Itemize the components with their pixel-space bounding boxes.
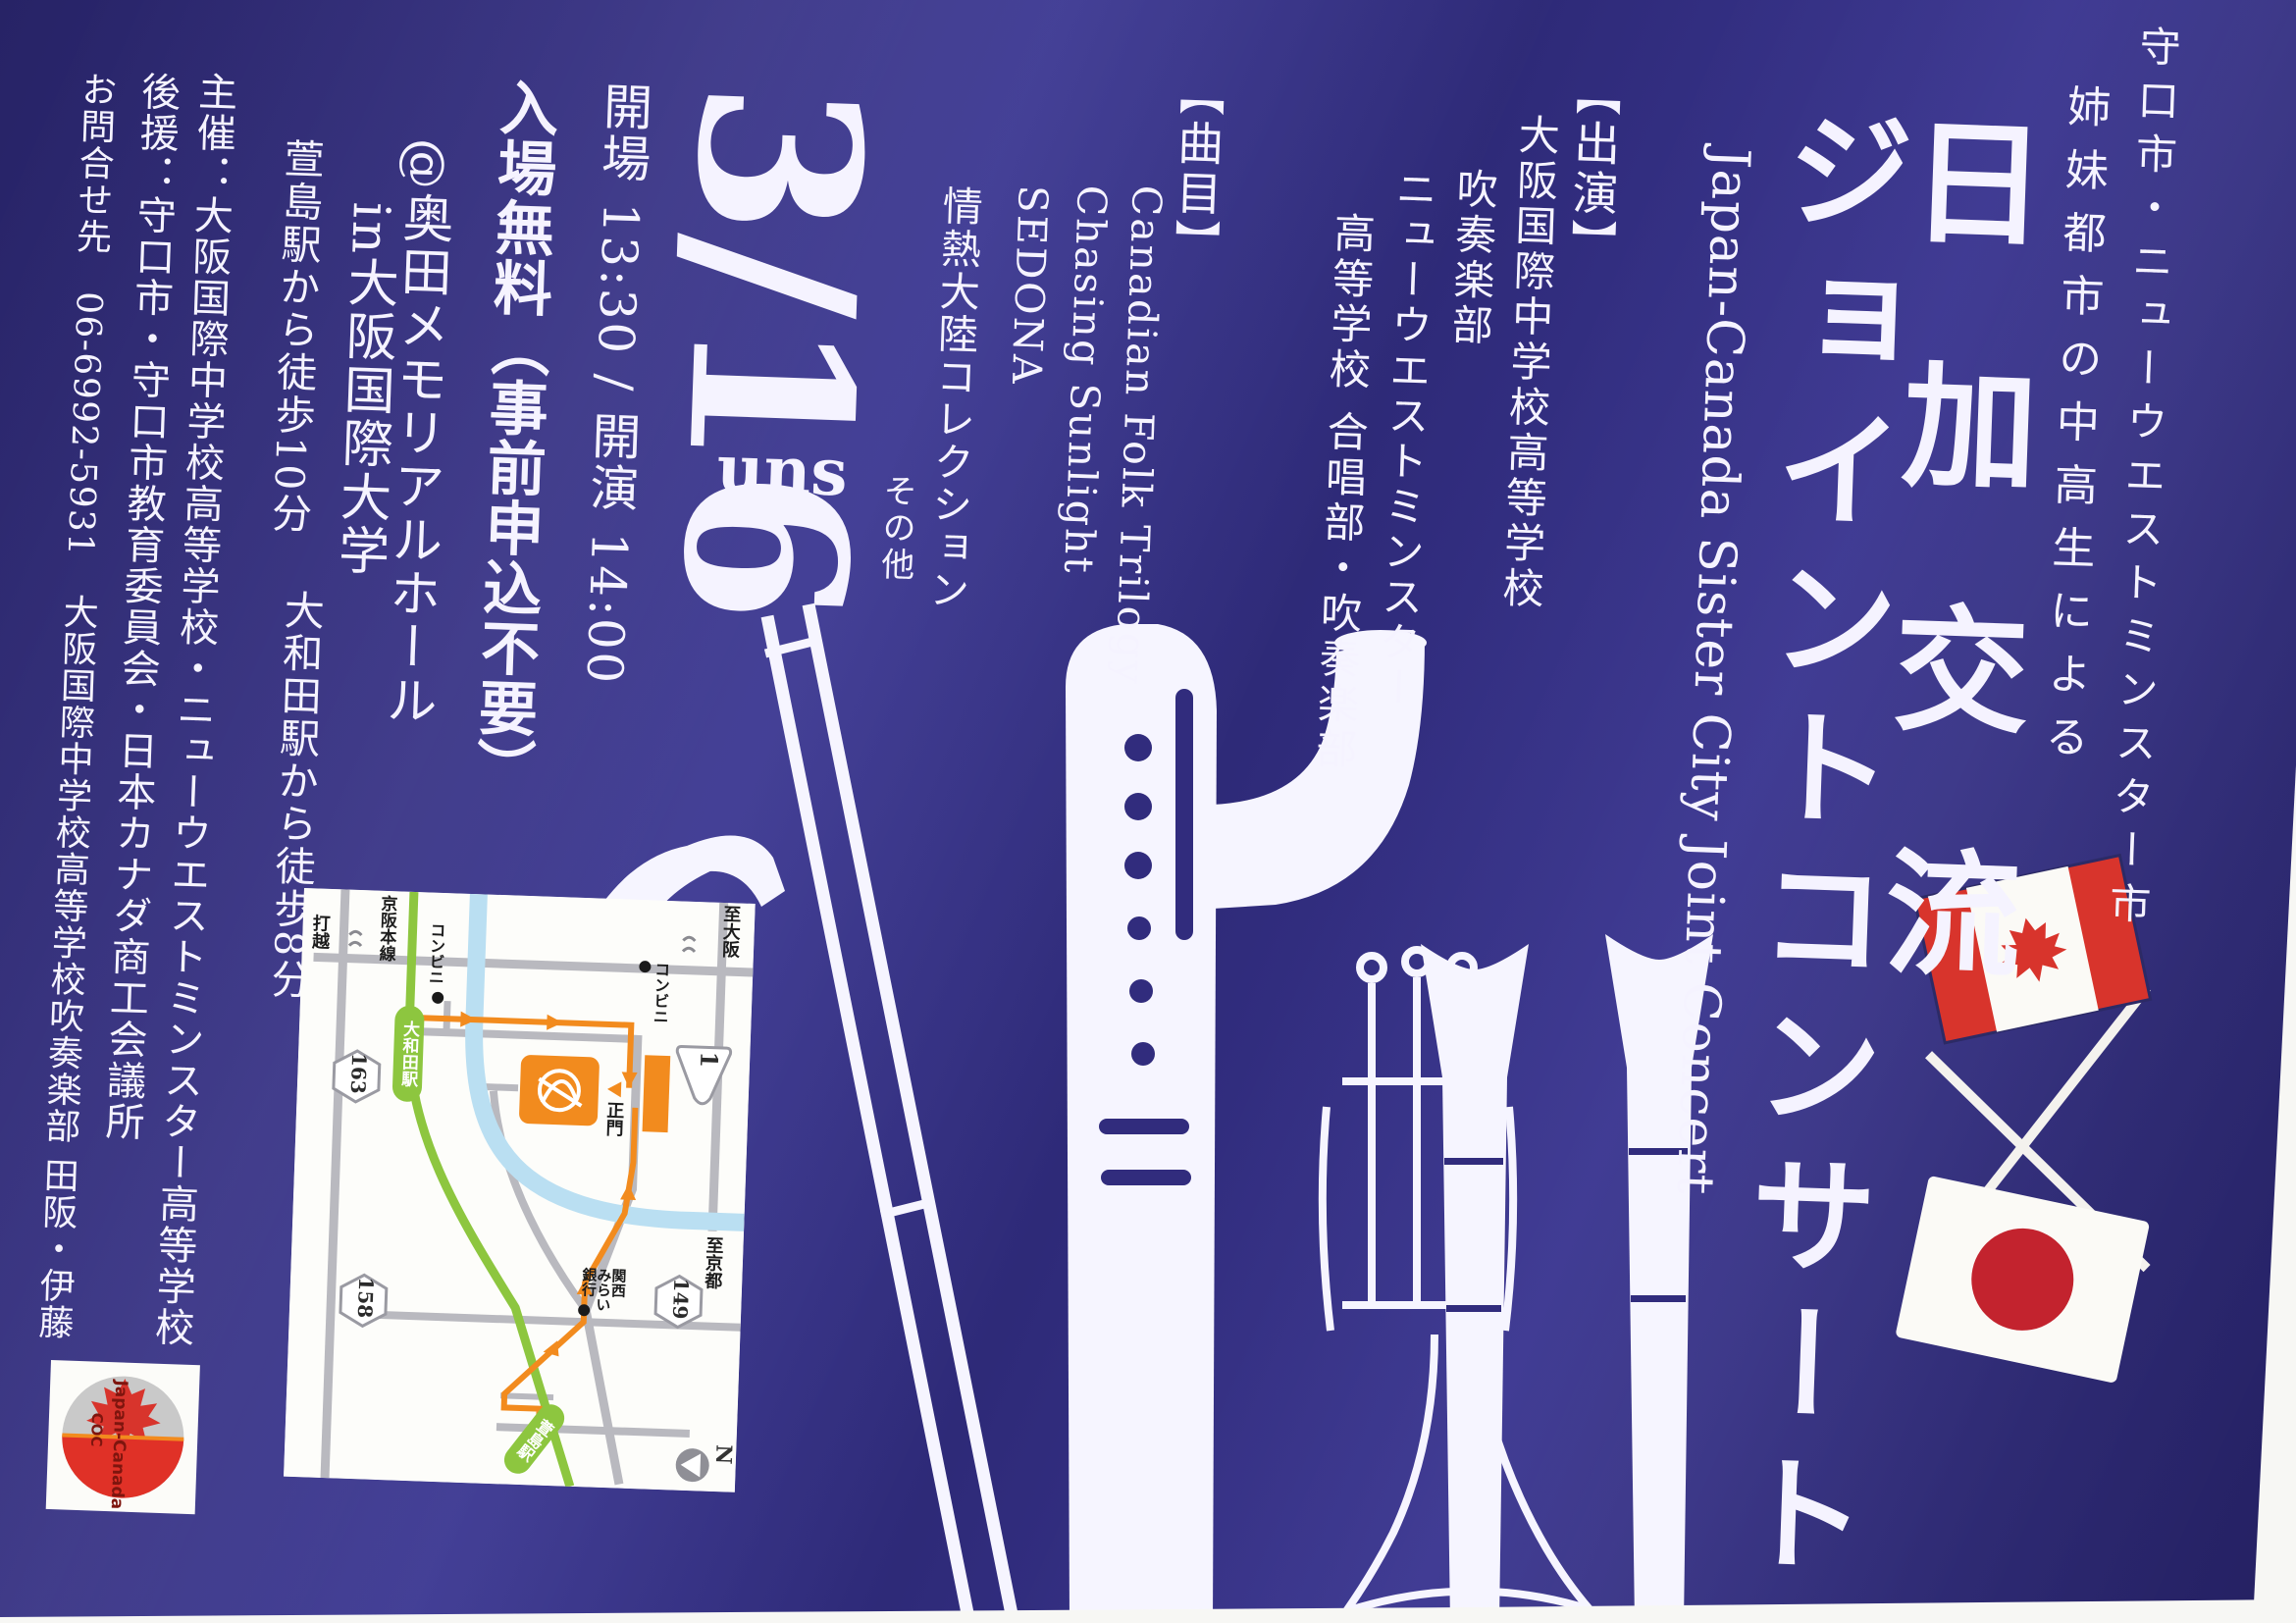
event-date: 3/16: [651, 79, 890, 627]
map-compass-label: N: [710, 1444, 737, 1465]
map-route-163: 163: [346, 1053, 371, 1095]
venue-map: 京阪本線 打越 コンビニ コンビニ 正門 関西 みらい 銀行 至京都 至大阪 1…: [284, 888, 756, 1492]
program-song: Chasing Sunlight: [1058, 184, 1112, 576]
program-song: SEDONA: [1006, 184, 1053, 387]
cast-header: 【出演】: [1565, 69, 1618, 270]
scanned-poster: 守口市・ニューウエストミンスター市 姉妹都市の中高生による 日加交流 ジョイント…: [0, 0, 2296, 1623]
map-graphics: [284, 888, 756, 1492]
map-label-to-kyoto: 至京都: [703, 1235, 722, 1289]
map-label-gate: 正門: [603, 1101, 622, 1137]
program-header: 【曲目】: [1169, 69, 1222, 270]
map-building-2: [643, 1055, 671, 1132]
trombone-slide: [765, 604, 1013, 1623]
event-day: uns: [715, 430, 849, 511]
map-label-conv1: コンビニ: [427, 921, 444, 985]
venue-university: in大阪国際大学: [333, 201, 396, 579]
poster-background: 守口市・ニューウエストミンスター市 姉妹都市の中高生による 日加交流 ジョイント…: [0, 0, 2296, 1623]
map-label-rail: 京阪本線: [376, 895, 394, 963]
map-station-owada: 大和田駅: [391, 1005, 424, 1102]
map-label-utikoshi: 打越: [310, 914, 329, 950]
japan-canada-coc-logo: Japan-Canada COC: [46, 1360, 200, 1514]
map-route-1: 1: [695, 1051, 724, 1069]
access-kayashima: 萱島駅から徒歩10分: [267, 137, 321, 536]
japan-flag-icon: [1895, 1176, 2150, 1384]
map-label-to-osaka: 至大阪: [720, 905, 740, 959]
map-label-bank: 関西 みらい 銀行: [580, 1267, 626, 1313]
cast-line: 吹奏楽部: [1448, 167, 1495, 349]
map-label-conv2: コンビニ: [651, 961, 668, 1024]
map-route-149: 149: [668, 1278, 693, 1320]
logo-text-line2: COC: [87, 1412, 106, 1446]
map-route-158: 158: [353, 1277, 378, 1319]
